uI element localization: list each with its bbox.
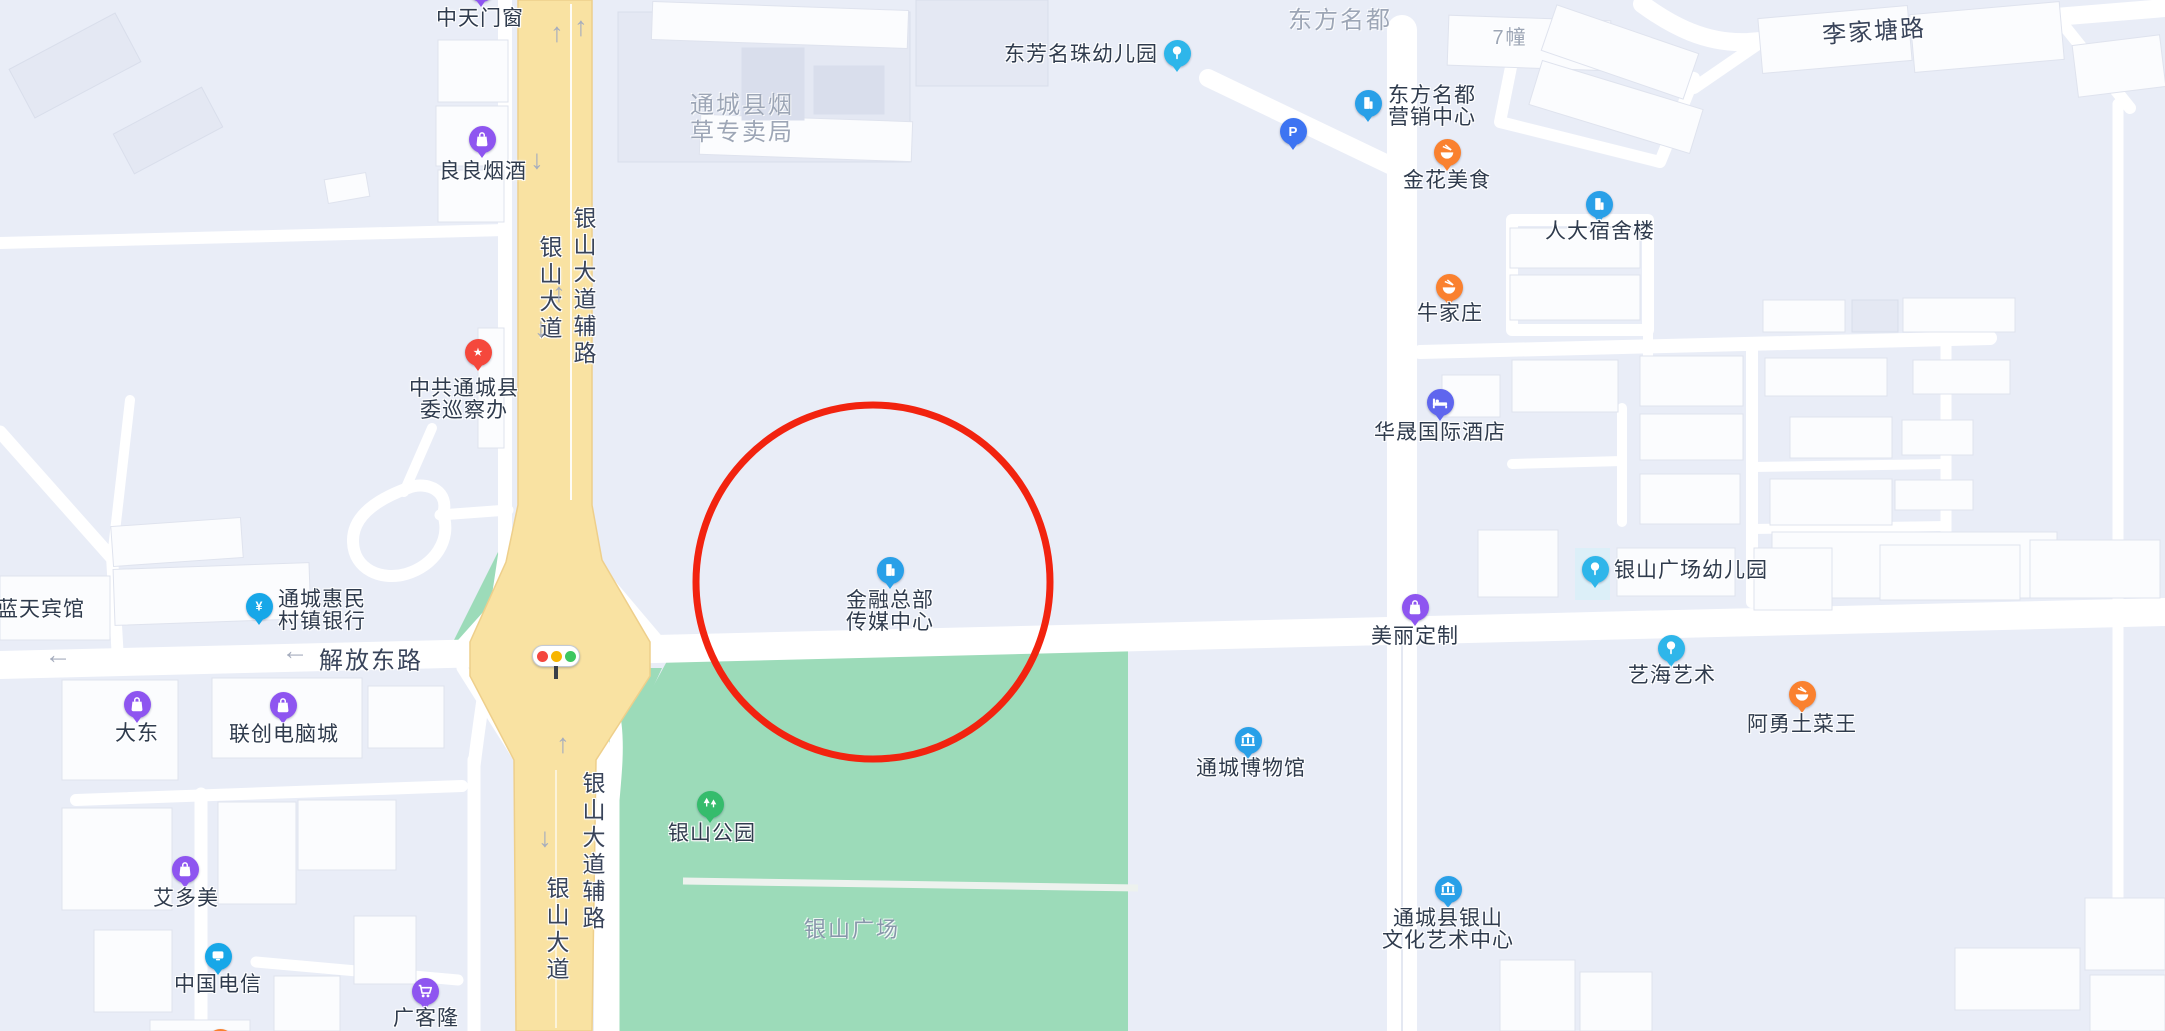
annotation-layer — [0, 0, 2165, 1031]
red-circle-annotation — [696, 405, 1050, 759]
map-canvas[interactable]: 银山大道银山大道辅路解放东路银山大道辅路银山大道李家塘路通城县烟草专卖局东方名都… — [0, 0, 2165, 1031]
